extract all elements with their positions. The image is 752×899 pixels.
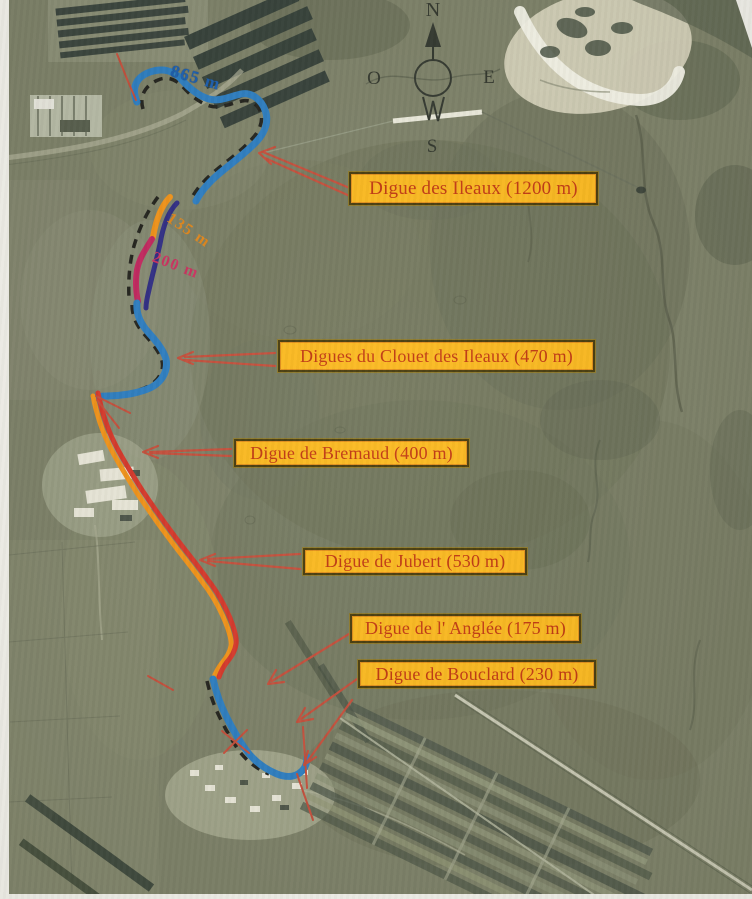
compass-letter-s: S (427, 136, 438, 157)
label-digue-de-bouclard: Digue de Bouclard (230 m) (358, 660, 596, 688)
label-digue-de-bremaud: Digue de Bremaud (400 m) (234, 439, 469, 467)
scanned-aerial-map: N O E S 865 m 135 m 200 m Digue des Ilea… (0, 0, 752, 899)
compass-letter-n: N (426, 0, 440, 21)
compass-letter-e: E (483, 67, 495, 88)
compass-letter-o: O (367, 68, 381, 89)
label-digue-de-jubert: Digue de Jubert (530 m) (303, 548, 527, 575)
label-digue-de-l-anglee: Digue de l' Anglée (175 m) (350, 614, 581, 643)
label-digues-du-clouet: Digues du Clouet des Ileaux (470 m) (278, 340, 595, 372)
label-digue-des-ileaux: Digue des Ileaux (1200 m) (349, 172, 598, 205)
